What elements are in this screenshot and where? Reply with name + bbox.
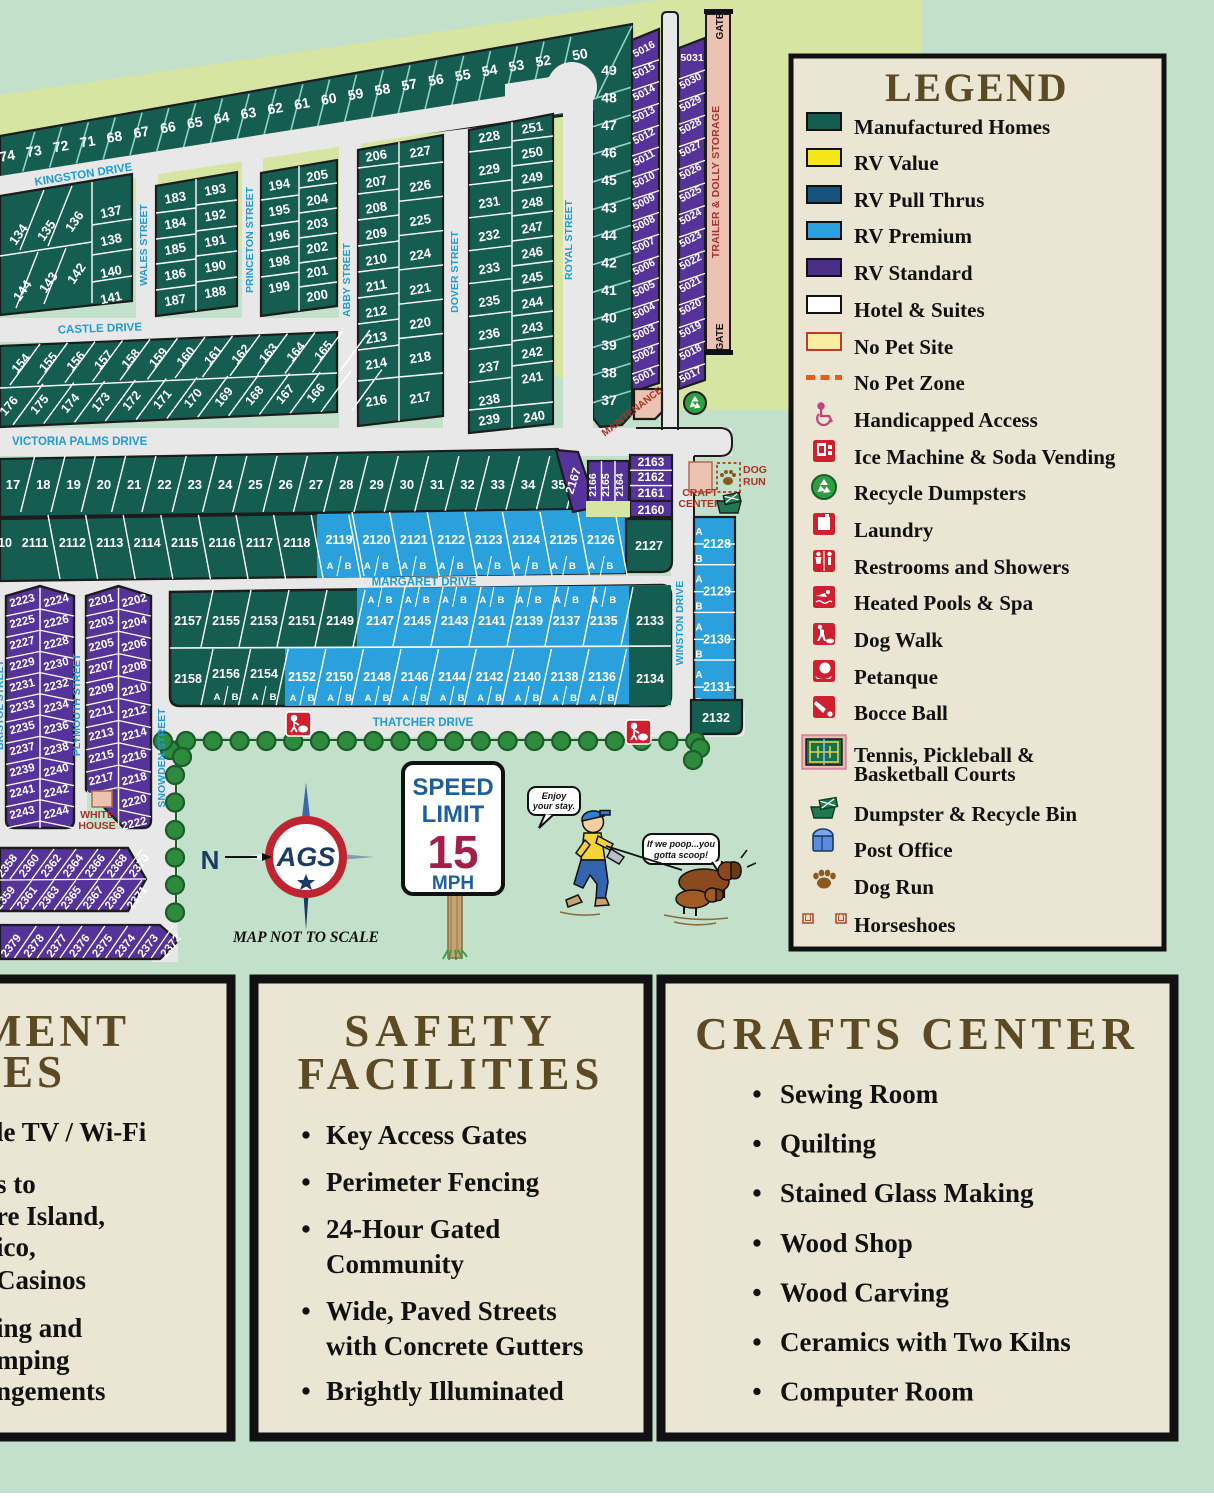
svg-text:BRISTOL STREET: BRISTOL STREET [0, 659, 6, 750]
svg-text:2153: 2153 [250, 614, 278, 628]
svg-text:A: A [514, 561, 521, 572]
svg-text:A: A [588, 561, 595, 572]
svg-text:55: 55 [454, 66, 472, 84]
svg-text:B: B [495, 693, 502, 704]
svg-text:66: 66 [159, 118, 177, 136]
svg-text:44: 44 [601, 227, 617, 243]
svg-text:2116: 2116 [208, 536, 235, 550]
svg-text:2144: 2144 [438, 670, 466, 684]
svg-text:2165: 2165 [600, 473, 612, 497]
svg-text:B: B [345, 693, 352, 704]
svg-text:17: 17 [6, 477, 20, 492]
svg-text:WALES STREET: WALES STREET [138, 204, 150, 286]
svg-text:24-Hour Gated: 24-Hour Gated [326, 1214, 500, 1244]
svg-text:A: A [402, 693, 409, 704]
svg-text:B: B [458, 693, 465, 704]
svg-text:B: B [609, 595, 616, 606]
svg-text:B: B [497, 595, 504, 606]
svg-text:2113: 2113 [96, 536, 123, 550]
svg-text:PLYMOUTH STREET: PLYMOUTH STREET [71, 653, 83, 756]
svg-text:2146: 2146 [401, 670, 429, 684]
svg-text:Casinos: Casinos [0, 1265, 86, 1295]
svg-text:15: 15 [427, 826, 478, 878]
svg-text:•: • [752, 1178, 761, 1208]
svg-text:B: B [382, 561, 389, 572]
svg-text:2111: 2111 [22, 536, 48, 550]
svg-text:41: 41 [601, 282, 617, 298]
svg-text:SNOWDEN STREET: SNOWDEN STREET [156, 708, 168, 808]
svg-text:A: A [695, 527, 702, 538]
svg-text:A: A [368, 595, 375, 606]
svg-text:61: 61 [293, 94, 311, 112]
svg-text:B: B [533, 693, 540, 704]
svg-text:A: A [551, 561, 558, 572]
svg-text:2152: 2152 [288, 670, 316, 684]
svg-text:39: 39 [601, 337, 617, 353]
svg-text:Manufactured Homes: Manufactured Homes [854, 115, 1050, 139]
svg-text:68: 68 [105, 127, 123, 145]
svg-text:•: • [752, 1129, 761, 1159]
svg-text:VICTORIA PALMS DRIVE: VICTORIA PALMS DRIVE [12, 436, 148, 448]
svg-text:2163: 2163 [638, 455, 665, 469]
svg-text:48: 48 [601, 90, 617, 106]
svg-text:2154: 2154 [250, 667, 278, 681]
svg-text:2150: 2150 [326, 670, 354, 684]
svg-text:52: 52 [534, 51, 552, 69]
svg-text:RV Value: RV Value [854, 151, 939, 175]
svg-text:2134: 2134 [636, 672, 664, 686]
svg-text:•: • [301, 1214, 310, 1244]
svg-text:2132: 2132 [702, 711, 730, 725]
svg-text:29: 29 [369, 477, 383, 492]
svg-text:B: B [345, 561, 352, 572]
svg-text:Heated Pools & Spa: Heated Pools & Spa [854, 591, 1034, 615]
svg-text:47: 47 [601, 117, 617, 133]
svg-text:2145: 2145 [403, 614, 431, 628]
svg-text:B: B [572, 595, 579, 606]
svg-text:26: 26 [278, 477, 292, 492]
svg-text:2137: 2137 [553, 614, 581, 628]
svg-text:B: B [494, 561, 501, 572]
svg-text:B: B [695, 554, 702, 565]
svg-text:le TV / Wi-Fi: le TV / Wi-Fi [0, 1117, 147, 1147]
svg-text:•: • [752, 1079, 761, 1109]
svg-text:60: 60 [320, 89, 338, 107]
svg-text:•: • [301, 1167, 310, 1197]
svg-text:25: 25 [248, 477, 262, 492]
svg-text:MPH: MPH [432, 873, 474, 894]
svg-text:67: 67 [132, 123, 150, 141]
svg-text:B: B [535, 595, 542, 606]
svg-text:A: A [290, 693, 297, 704]
svg-text:5031: 5031 [680, 52, 704, 64]
svg-text:Bocce Ball: Bocce Ball [854, 701, 948, 725]
svg-text:Key Access Gates: Key Access Gates [326, 1120, 527, 1150]
svg-text:A: A [517, 595, 524, 606]
svg-text:Enjoy: Enjoy [542, 791, 567, 801]
svg-text:Dog Run: Dog Run [854, 875, 934, 899]
svg-text:30: 30 [400, 477, 414, 492]
svg-text:CRAFTS CENTER: CRAFTS CENTER [695, 1009, 1139, 1059]
svg-text:2148: 2148 [363, 670, 391, 684]
svg-text:GATE: GATE [715, 323, 726, 350]
svg-text:FACILITIES: FACILITIES [298, 1049, 605, 1099]
svg-text:2141: 2141 [478, 614, 506, 628]
svg-text:A: A [554, 595, 561, 606]
svg-text:53: 53 [507, 56, 525, 74]
svg-text:•: • [752, 1228, 761, 1258]
svg-text:RUN: RUN [743, 476, 766, 488]
svg-text:B: B [420, 693, 427, 704]
svg-text:A: A [695, 670, 702, 681]
svg-text:2117: 2117 [246, 536, 273, 550]
svg-text:Brightly Illuminated: Brightly Illuminated [326, 1376, 564, 1406]
svg-text:2112: 2112 [59, 536, 86, 550]
svg-text:Ceramics with Two Kilns: Ceramics with Two Kilns [780, 1327, 1071, 1357]
svg-text:2156: 2156 [212, 667, 240, 681]
svg-text:TRAILER & DOLLY STORAGE: TRAILER & DOLLY STORAGE [710, 106, 722, 259]
svg-text:33: 33 [491, 477, 505, 492]
svg-text:2162: 2162 [638, 470, 665, 484]
svg-text:Handicapped Access: Handicapped Access [854, 408, 1038, 432]
svg-text:No Pet Zone: No Pet Zone [854, 371, 965, 395]
svg-text:B: B [695, 649, 702, 660]
svg-text:45: 45 [601, 172, 617, 188]
svg-text:46: 46 [601, 145, 617, 161]
svg-text:2119: 2119 [325, 533, 352, 547]
svg-text:B: B [423, 595, 430, 606]
svg-text:ing and: ing and [0, 1313, 82, 1343]
svg-text:2121: 2121 [400, 533, 428, 547]
svg-text:HOUSE: HOUSE [78, 820, 115, 832]
svg-text:62: 62 [266, 99, 284, 117]
svg-text:•: • [752, 1377, 761, 1407]
svg-text:64: 64 [212, 108, 230, 126]
svg-text:43: 43 [601, 200, 617, 216]
svg-text:GATE: GATE [715, 12, 726, 39]
svg-text:B: B [695, 602, 702, 613]
svg-text:B: B [606, 561, 613, 572]
svg-text:A: A [591, 595, 598, 606]
svg-text:34: 34 [521, 477, 536, 492]
svg-text:27: 27 [309, 477, 323, 492]
svg-text:31: 31 [430, 477, 444, 492]
svg-text:ngements: ngements [0, 1376, 106, 1406]
svg-text:2122: 2122 [437, 533, 465, 547]
svg-text:your stay.: your stay. [532, 801, 575, 811]
svg-text:SPEED: SPEED [412, 774, 493, 801]
svg-text:Stained Glass Making: Stained Glass Making [780, 1178, 1034, 1208]
svg-text:Community: Community [326, 1249, 465, 1279]
svg-text:A: A [515, 693, 522, 704]
svg-text:Petanque: Petanque [854, 665, 938, 689]
svg-text:RV Pull Thrus: RV Pull Thrus [854, 188, 984, 212]
svg-text:A: A [365, 693, 372, 704]
svg-text:32: 32 [460, 477, 474, 492]
svg-text:B: B [608, 693, 615, 704]
svg-text:54: 54 [480, 61, 498, 79]
svg-text:Laundry: Laundry [854, 518, 934, 542]
svg-text:2120: 2120 [362, 533, 390, 547]
svg-text:A: A [590, 693, 597, 704]
svg-text:59: 59 [346, 85, 364, 103]
svg-text:Basketball Courts: Basketball Courts [854, 762, 1016, 786]
svg-text:2125: 2125 [549, 533, 577, 547]
svg-text:72: 72 [52, 137, 70, 155]
svg-text:21: 21 [127, 477, 141, 492]
svg-text:B: B [532, 561, 539, 572]
svg-text:A: A [214, 692, 221, 703]
svg-text:2147: 2147 [366, 614, 394, 628]
svg-text:2114: 2114 [134, 536, 161, 550]
svg-text:RV Premium: RV Premium [854, 224, 973, 248]
svg-text:re Island,: re Island, [0, 1201, 105, 1231]
svg-text:ico,: ico, [0, 1232, 36, 1262]
svg-text:A: A [405, 595, 412, 606]
svg-text:Quilting: Quilting [780, 1129, 877, 1159]
svg-text:56: 56 [427, 70, 445, 88]
svg-text:If we poop...you: If we poop...you [647, 839, 715, 849]
svg-text:Horseshoes: Horseshoes [854, 913, 956, 937]
svg-text:A: A [439, 561, 446, 572]
svg-text:LIMIT: LIMIT [422, 801, 485, 828]
svg-text:63: 63 [239, 104, 257, 122]
svg-text:A: A [695, 575, 702, 586]
svg-text:A: A [477, 693, 484, 704]
svg-text:2160: 2160 [638, 503, 665, 517]
svg-text:2157: 2157 [174, 614, 202, 628]
svg-text:WINSTON DRIVE: WINSTON DRIVE [674, 581, 686, 665]
svg-text:2136: 2136 [588, 670, 616, 684]
svg-text:2133: 2133 [636, 614, 664, 628]
svg-text:THATCHER DRIVE: THATCHER DRIVE [373, 717, 474, 729]
svg-text:38: 38 [601, 365, 617, 381]
svg-text:2118: 2118 [283, 536, 310, 550]
svg-text:22: 22 [157, 477, 171, 492]
svg-text:•: • [752, 1277, 761, 1307]
svg-text:2155: 2155 [212, 614, 240, 628]
svg-text:2139: 2139 [515, 614, 543, 628]
svg-text:28: 28 [339, 477, 353, 492]
svg-text:50: 50 [571, 45, 589, 63]
svg-text:B: B [570, 693, 577, 704]
svg-text:A: A [401, 561, 408, 572]
svg-text:A: A [476, 561, 483, 572]
svg-text:2130: 2130 [703, 632, 731, 646]
svg-text:2128: 2128 [703, 537, 731, 551]
svg-text:37: 37 [601, 392, 617, 408]
svg-text:2166: 2166 [587, 473, 599, 497]
svg-text:•: • [301, 1120, 310, 1150]
svg-text:10: 10 [0, 536, 12, 550]
svg-text:2142: 2142 [476, 670, 504, 684]
svg-text:24: 24 [218, 477, 233, 492]
svg-text:A: A [695, 622, 702, 633]
svg-text:B: B [386, 595, 393, 606]
svg-text:Post Office: Post Office [854, 838, 953, 862]
svg-text:18: 18 [36, 477, 50, 492]
svg-text:Restrooms and Showers: Restrooms and Showers [854, 555, 1069, 579]
svg-text:•: • [752, 1327, 761, 1357]
svg-text:Computer Room: Computer Room [780, 1377, 974, 1407]
svg-text:Dog Walk: Dog Walk [854, 628, 943, 652]
svg-text:49: 49 [601, 62, 617, 78]
svg-text:2143: 2143 [441, 614, 469, 628]
svg-text:Wide, Paved Streets: Wide, Paved Streets [326, 1296, 557, 1326]
svg-text:2124: 2124 [512, 533, 540, 547]
svg-text:2149: 2149 [326, 614, 354, 628]
svg-text:AGS: AGS [276, 842, 336, 872]
svg-text:2123: 2123 [475, 533, 503, 547]
svg-text:2164: 2164 [614, 473, 626, 497]
svg-text:A: A [479, 595, 486, 606]
svg-text:B: B [308, 693, 315, 704]
svg-text:•: • [301, 1296, 310, 1326]
svg-text:Hotel & Suites: Hotel & Suites [854, 298, 985, 322]
svg-text:Wood Shop: Wood Shop [780, 1228, 913, 1258]
svg-text:42: 42 [601, 255, 617, 271]
svg-text:A: A [252, 692, 259, 703]
svg-text:2131: 2131 [703, 680, 731, 694]
svg-text:PRINCETON STREET: PRINCETON STREET [244, 186, 256, 293]
svg-text:B: B [270, 692, 277, 703]
svg-text:DOVER STREET: DOVER STREET [449, 231, 461, 313]
svg-text:No Pet Site: No Pet Site [854, 335, 953, 359]
svg-text:DOG: DOG [743, 464, 767, 476]
svg-text:20: 20 [97, 477, 111, 492]
svg-text:B: B [457, 561, 464, 572]
svg-text:Sewing Room: Sewing Room [780, 1079, 939, 1109]
svg-text:gotta scoop!: gotta scoop! [653, 850, 708, 860]
svg-text:mping: mping [0, 1345, 70, 1375]
svg-text:57: 57 [400, 75, 418, 93]
svg-text:with Concrete Gutters: with Concrete Gutters [326, 1331, 583, 1361]
svg-text:A: A [327, 693, 334, 704]
svg-text:B: B [232, 692, 239, 703]
svg-text:A: A [440, 693, 447, 704]
svg-text:A: A [364, 561, 371, 572]
svg-text:Ice Machine & Soda Vending: Ice Machine & Soda Vending [854, 445, 1116, 469]
svg-text:B: B [569, 561, 576, 572]
svg-text:A: A [442, 595, 449, 606]
svg-text:40: 40 [601, 310, 617, 326]
svg-text:ABBY STREET: ABBY STREET [341, 242, 353, 316]
svg-text:•: • [301, 1376, 310, 1406]
svg-text:N: N [201, 845, 220, 875]
svg-text:ROYAL STREET: ROYAL STREET [563, 199, 575, 280]
svg-text:A: A [327, 561, 334, 572]
svg-text:MAP NOT TO SCALE: MAP NOT TO SCALE [232, 929, 379, 946]
svg-text:65: 65 [186, 113, 204, 131]
svg-text:2158: 2158 [174, 672, 202, 686]
svg-text:LEGEND: LEGEND [885, 65, 1069, 110]
svg-text:71: 71 [78, 132, 96, 150]
svg-text:B: B [460, 595, 467, 606]
svg-text:Wood Carving: Wood Carving [780, 1277, 949, 1307]
svg-text:Perimeter Fencing: Perimeter Fencing [326, 1167, 540, 1197]
svg-text:A: A [552, 693, 559, 704]
svg-text:B: B [419, 561, 426, 572]
svg-text:73: 73 [25, 142, 43, 160]
svg-text:Recycle Dumpsters: Recycle Dumpsters [854, 481, 1026, 505]
svg-text:2151: 2151 [288, 614, 316, 628]
svg-text:2127: 2127 [635, 539, 663, 553]
svg-text:B: B [383, 693, 390, 704]
svg-text:2135: 2135 [590, 614, 618, 628]
svg-text:IES: IES [0, 1047, 66, 1097]
svg-text:MARGARET DRIVE: MARGARET DRIVE [372, 577, 477, 589]
svg-text:19: 19 [66, 477, 80, 492]
svg-text:2161: 2161 [638, 486, 665, 500]
svg-text:s to: s to [0, 1169, 36, 1199]
svg-text:2115: 2115 [171, 536, 198, 550]
svg-text:58: 58 [373, 80, 391, 98]
svg-text:RV Standard: RV Standard [854, 261, 973, 285]
svg-text:23: 23 [188, 477, 202, 492]
svg-text:2126: 2126 [587, 533, 615, 547]
svg-text:2140: 2140 [513, 670, 541, 684]
svg-text:2138: 2138 [551, 670, 579, 684]
svg-text:CENTER: CENTER [678, 498, 722, 510]
svg-text:Dumpster & Recycle Bin: Dumpster & Recycle Bin [854, 802, 1077, 826]
svg-text:2129: 2129 [703, 585, 731, 599]
